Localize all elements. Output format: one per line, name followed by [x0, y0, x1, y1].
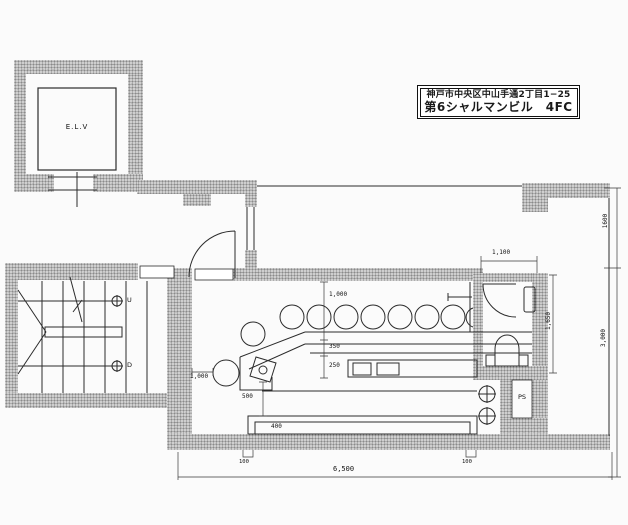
sink-right	[377, 363, 399, 375]
toilet-bowl	[486, 335, 528, 366]
bar-stool	[388, 305, 412, 329]
dim-stool-clearance-left: 1,000	[190, 374, 208, 380]
stair-break-mark	[70, 277, 82, 322]
dim-counter-clearance-top: 1,000	[329, 292, 347, 298]
shelf-line	[448, 293, 472, 301]
dim-notch-right	[466, 450, 476, 457]
title-block-inner: 神戸市中央区中山手通2丁目1−25 第6シャルマンビル 4FC	[420, 88, 578, 117]
dim-pillar-left: 100	[239, 460, 249, 466]
stairs-down-label: D	[127, 362, 133, 369]
stairs-up-label: U	[127, 297, 133, 304]
floorplan-canvas: E.L.V U D PS 1,000 1,000 350 250 500 400…	[0, 0, 628, 525]
bar-stool	[361, 305, 385, 329]
bar-stool	[241, 322, 265, 346]
dim-overall-width: 6,500	[333, 466, 354, 473]
toilet-cistern	[524, 287, 535, 312]
dim-counter-depth: 350	[329, 344, 340, 350]
elevator-label: E.L.V	[38, 124, 116, 131]
dim-line-counter-chain	[320, 282, 328, 378]
window-glazing	[247, 207, 254, 250]
pipe-space-label: PS	[511, 394, 533, 401]
dim-line-toilet-width	[481, 256, 537, 273]
dim-room-depth: 3,000	[601, 329, 607, 347]
dim-bench-depth: 400	[271, 424, 282, 430]
bar-stool	[213, 360, 239, 386]
bar-counter	[240, 332, 532, 391]
toilet-door-swing-arc	[483, 284, 516, 317]
dim-line-bench	[259, 382, 267, 416]
bar-stool	[415, 305, 439, 329]
counter-corner-post-pin	[259, 366, 267, 374]
site-address: 神戸市中央区中山手通2丁目1−25	[427, 90, 571, 101]
floorplan-linework	[0, 0, 628, 525]
bar-stool	[280, 305, 304, 329]
dim-notch-left	[243, 450, 253, 457]
bench-seat	[248, 416, 477, 434]
elevator-door-lines	[48, 172, 97, 207]
dim-pillar-right: 100	[462, 460, 472, 466]
bar-stool	[334, 305, 358, 329]
dim-backbar-depth: 250	[329, 363, 340, 369]
backbar-equipment	[348, 360, 477, 377]
staircase	[18, 277, 147, 393]
dim-bench-clearance: 500	[242, 394, 253, 400]
stair-doorway	[140, 266, 174, 278]
dim-toilet-width: 1,100	[492, 250, 510, 256]
dim-toilet-depth: 1,650	[546, 312, 552, 330]
dim-balcony-depth: 1600	[603, 214, 609, 228]
sink-left	[353, 363, 371, 375]
building-name: 第6シャルマンビル 4FC	[424, 101, 572, 115]
dimension-lines	[178, 188, 621, 480]
title-block: 神戸市中央区中山手通2丁目1−25 第6シャルマンビル 4FC	[417, 85, 580, 119]
bar-stool	[441, 305, 465, 329]
bar-stool	[307, 305, 331, 329]
floor-drain-symbols	[478, 385, 496, 425]
entry-door-leaf-closed	[195, 269, 233, 280]
